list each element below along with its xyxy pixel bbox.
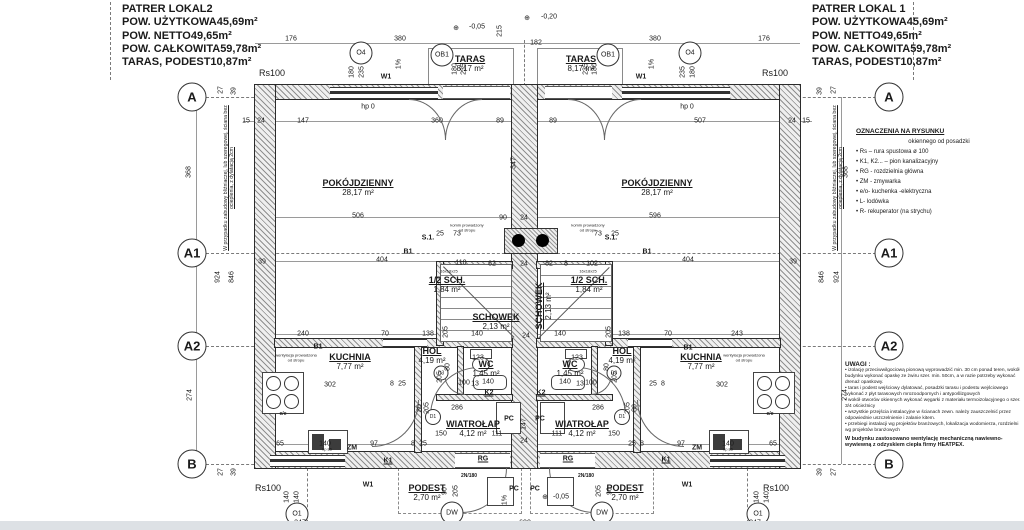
- dim-label: 180: [592, 63, 599, 75]
- room-label: KUCHNIA7,77 m²: [329, 352, 371, 372]
- title-block-row-label: POW. CAŁKOWITA: [122, 43, 220, 56]
- window-top-left: [330, 87, 438, 99]
- dim-label: hp 0: [361, 104, 375, 111]
- dim-label: PC: [535, 416, 545, 423]
- dim-label: 15: [802, 118, 810, 125]
- notes-footer: W budynku zastosowano wentylację mechani…: [845, 436, 1022, 449]
- dim-label: 16x18x25: [579, 269, 596, 274]
- dim-label: 140: [554, 331, 566, 338]
- dim-label: 404: [376, 257, 388, 264]
- dim-label: ZM: [692, 445, 702, 452]
- dim-label: 25: [611, 231, 619, 238]
- dim-label: 205: [453, 485, 460, 497]
- dim-label: -0,05: [553, 494, 569, 501]
- dim-label: K1: [662, 457, 671, 464]
- dim-label: 24: [522, 333, 530, 340]
- grid-marker: A2: [875, 332, 904, 361]
- dim-label: K2: [485, 390, 494, 397]
- dim-label: 111: [492, 431, 503, 438]
- dim-label: 73: [594, 231, 602, 238]
- dim-label: S.1.: [422, 235, 434, 242]
- list-item: • R- rekuperator (na strychu): [856, 207, 1022, 217]
- room-area: 1,45 m²: [556, 369, 583, 379]
- dim-label: 274: [187, 389, 194, 401]
- dim-label: 140: [284, 491, 291, 503]
- symbol-marker: O4: [679, 42, 702, 65]
- dim-label: 286: [451, 405, 463, 412]
- dim-label: 24: [520, 261, 528, 268]
- room-name: SCHOWEK: [534, 283, 544, 330]
- title-block-row-value: 45,69m²: [907, 16, 948, 29]
- dim-label: 39: [817, 87, 824, 95]
- dim-label: 1%: [396, 59, 403, 69]
- legend: OZNACZENIA NA RYSUNKU okiennego od posad…: [856, 127, 1022, 217]
- dim-label: 180: [349, 66, 356, 78]
- dim-label: 110: [455, 260, 466, 267]
- dim-label: 123: [472, 355, 484, 362]
- dim-label: 65: [769, 441, 777, 448]
- dim-label: 368: [843, 166, 850, 178]
- dim-label: e/e: [280, 411, 287, 417]
- dim-label: 205: [606, 326, 613, 338]
- dim-label: 27: [831, 86, 838, 94]
- dim-label: 380: [394, 36, 406, 43]
- dim-label: 147: [297, 118, 309, 125]
- dim-label: 180: [452, 63, 459, 75]
- dim-label: 65: [276, 441, 284, 448]
- title-block-row-value: 49,65m²: [881, 30, 922, 43]
- side-note-right: W przypadku zabudowy bliźniaczej, lub sz…: [832, 99, 844, 257]
- dim-label: 39: [231, 87, 238, 95]
- dim-label: 100: [585, 380, 597, 387]
- title-block-left: PATRER LOKAL2 POW. UŻYTKOWA45,69m²POW. N…: [122, 3, 337, 69]
- dim-label: 70: [381, 331, 389, 338]
- title-block-rows: POW. UŻYTKOWA45,69m²POW. NETTO49,65m²POW…: [812, 16, 1024, 69]
- dim-label: Rs100: [255, 483, 281, 493]
- dim-label: 8: [661, 381, 665, 388]
- title-block-row-label: POW. NETTO: [122, 30, 191, 43]
- dim-label: ⊕: [542, 493, 548, 501]
- list-item: • wszystkie przejścia instalacyjne w ści…: [845, 410, 1022, 422]
- room-area: 7,77 m²: [329, 362, 371, 372]
- dim-label: 360: [431, 118, 443, 125]
- dim-label: 150: [608, 431, 620, 438]
- dim-label: 1%: [649, 59, 656, 69]
- room-area: 28,17 m²: [322, 188, 393, 198]
- room-label: POKÓJDZIENNY28,17 m²: [322, 178, 393, 198]
- room-label: SCHOWEK2,13 m²: [473, 312, 520, 332]
- dim-label: 924: [215, 271, 222, 283]
- dim-label: ⊕: [524, 14, 530, 22]
- title-block-row-label: TARAS, PODEST: [812, 56, 900, 69]
- room-label: SCHOWEK2,13 m²: [534, 283, 554, 330]
- dim-label: Rs100: [259, 68, 285, 78]
- dim-label: 15: [242, 118, 250, 125]
- dim-label: PC: [509, 486, 519, 493]
- dim-label: 235: [680, 66, 687, 78]
- door-swing: [568, 99, 605, 140]
- room-label: HOL4,19 m²: [608, 346, 635, 366]
- list-item: • przebiegi instalacji wg projektów bran…: [845, 422, 1022, 434]
- dim-label: 150: [435, 431, 447, 438]
- dim-label: 215: [497, 25, 504, 37]
- dim-label: W1: [381, 74, 392, 81]
- dim-label: B1: [404, 249, 413, 256]
- dim-label: 176: [758, 36, 770, 43]
- stove-right: [753, 372, 795, 414]
- room-label: WIATROŁAP4,12 m²: [555, 419, 609, 439]
- room-label: TARAS8,17 m²: [455, 54, 485, 74]
- room-area: 2,70 m²: [408, 493, 445, 503]
- dim-label: ZM: [347, 445, 357, 452]
- door-swing: [445, 99, 482, 140]
- list-item: • e/o- kuchenka -elektryczna: [856, 187, 1022, 197]
- dim-label: W1: [363, 482, 374, 489]
- dim-label: 111: [552, 431, 563, 438]
- dim-label: 243: [731, 331, 743, 338]
- room-name: 1/2 SCH.: [429, 275, 466, 285]
- title-block-title: PATRER LOKAL2: [122, 3, 337, 16]
- side-note-left: W przypadku zabudowy bliźniaczej, lub sz…: [223, 99, 235, 257]
- bottom-edge-strip: [0, 521, 1024, 530]
- dim-label: hp 85: [322, 447, 332, 452]
- dim-label: 140: [754, 491, 761, 503]
- burner-icon: [266, 394, 281, 409]
- room-area: 2,13 m²: [544, 283, 554, 330]
- title-block-title: PATRER LOKAL 1: [812, 3, 1024, 16]
- dim-label: 235: [583, 63, 590, 75]
- dim-label: 140: [559, 379, 571, 386]
- dim-label: 302: [716, 382, 728, 389]
- dim-label: 8: [640, 441, 644, 448]
- dim-label: 80: [445, 363, 452, 371]
- room-label: POKÓJDZIENNY28,17 m²: [621, 178, 692, 198]
- grid-marker: A2: [178, 332, 207, 361]
- room-name: WIATROŁAP: [446, 419, 500, 429]
- dim-label: ⊕: [453, 24, 459, 32]
- title-block-row-value: 45,69m²: [217, 16, 258, 29]
- dim-label: 182: [530, 40, 542, 47]
- room-area: 1,84 m²: [429, 285, 466, 295]
- room-name: TARAS: [455, 54, 485, 64]
- room-area: 4,19 m²: [608, 356, 635, 366]
- list-item: • RG - rozdzielnia główna: [856, 167, 1022, 177]
- dim-label: 205: [596, 485, 603, 497]
- title-block-row-label: POW. CAŁKOWITA: [812, 43, 910, 56]
- heat-pump-outdoor-right: [547, 477, 574, 506]
- room-name: SCHOWEK: [473, 312, 520, 322]
- dim-label: 24: [788, 118, 796, 125]
- dim-label: 380: [649, 36, 661, 43]
- dim-label: Rs100: [762, 68, 788, 78]
- dim-label: 8: [411, 441, 415, 448]
- room-name: HOL: [608, 346, 635, 356]
- dim-label: e/e: [767, 411, 774, 417]
- dim-label: 25: [436, 231, 444, 238]
- dim-label: 846: [819, 271, 826, 283]
- dim-label: 138: [422, 331, 434, 338]
- room-label: PODEST2,70 m²: [408, 483, 445, 503]
- dim-label: 8: [564, 261, 568, 268]
- dim-label: 25: [628, 441, 636, 448]
- title-block-row: POW. UŻYTKOWA45,69m²: [812, 16, 1024, 29]
- title-block-right: PATRER LOKAL 1 POW. UŻYTKOWA45,69m²POW. …: [812, 3, 1024, 69]
- dim-label: 70: [664, 331, 672, 338]
- dim-label: 205: [612, 371, 619, 383]
- legend-subtitle: okiennego od posadzki: [856, 137, 1022, 147]
- dim-label: 235: [461, 63, 468, 75]
- dimension-line: [275, 217, 512, 218]
- title-block-row: TARAS, PODEST10,87m²: [122, 56, 337, 69]
- title-block-row: POW. CAŁKOWITA59,78m²: [122, 43, 337, 56]
- title-block-row: TARAS, PODEST10,87m²: [812, 56, 1024, 69]
- dim-label: 27: [218, 86, 225, 94]
- room-name: POKÓJDZIENNY: [621, 178, 692, 188]
- axis-line: [524, 40, 525, 86]
- chimney-block: [504, 228, 558, 254]
- dim-label: B1: [684, 345, 693, 352]
- symbol-marker: OB1: [431, 44, 454, 67]
- terrace-door-left: [443, 86, 510, 99]
- dim-label: 27: [831, 468, 838, 476]
- title-block-row-value: 10,87m²: [900, 56, 941, 69]
- room-area: 1,45 m²: [472, 369, 499, 379]
- title-block-row-value: 49,65m²: [191, 30, 232, 43]
- dim-label: 13: [471, 381, 479, 388]
- dim-label: 180: [690, 66, 697, 78]
- axis-line: [110, 2, 111, 80]
- dim-label: 140: [482, 379, 494, 386]
- burner-icon: [284, 376, 299, 391]
- dim-label: 347: [511, 157, 518, 169]
- title-block-row: POW. NETTO49,65m²: [812, 30, 1024, 43]
- title-block-row-label: POW. UŻYTKOWA: [812, 16, 907, 29]
- dim-label: B1: [314, 344, 323, 351]
- dim-label: 25: [398, 381, 406, 388]
- dim-label: 13: [576, 381, 584, 388]
- dim-label: 140: [471, 331, 483, 338]
- dim-label: 506: [352, 213, 364, 220]
- room-area: 4,12 m²: [555, 429, 609, 439]
- dim-label: 25: [419, 441, 427, 448]
- floor-plan-canvas: PATRER LOKAL2 POW. UŻYTKOWA45,69m²POW. N…: [0, 0, 1024, 530]
- dimension-line: [196, 97, 197, 464]
- dim-label: 27: [218, 468, 225, 476]
- dim-label: 302: [324, 382, 336, 389]
- dim-label: Rs100: [763, 483, 789, 493]
- title-block-row: POW. CAŁKOWITA59,78m²: [812, 43, 1024, 56]
- dim-label: W1: [636, 74, 647, 81]
- window-top-right: [622, 87, 730, 99]
- symbol-marker: OB1: [597, 44, 620, 67]
- dim-label: 205: [625, 402, 632, 414]
- dim-label: RG: [563, 456, 574, 463]
- burner-icon: [266, 376, 281, 391]
- dim-label: B1: [643, 249, 652, 256]
- dim-label: 147: [521, 418, 528, 430]
- room-area: 8,17 m²: [455, 64, 485, 74]
- dim-label: 82: [488, 261, 496, 268]
- list-item: • L- lodówka: [856, 197, 1022, 207]
- dim-label: -0,05: [469, 24, 485, 31]
- room-label: WC1,45 m²: [556, 359, 583, 379]
- room-name: 1/2 SCH.: [571, 275, 608, 285]
- legend-items: • Rs – rura spustowa ø 100• K1, K2... – …: [856, 147, 1022, 217]
- room-name: PODEST: [408, 483, 445, 493]
- dim-label: 123: [571, 355, 583, 362]
- dim-label: 235: [359, 66, 366, 78]
- dim-label: PC: [504, 416, 514, 423]
- dim-label: K1: [384, 458, 393, 465]
- dim-label: 39: [258, 259, 266, 266]
- room-label: WC1,45 m²: [472, 359, 499, 379]
- dim-label: 89: [496, 118, 504, 125]
- burner-icon: [775, 394, 790, 409]
- dim-label: 80: [632, 404, 639, 412]
- burner-icon: [757, 376, 772, 391]
- dim-label: 846: [229, 271, 236, 283]
- dim-label: 24: [520, 438, 528, 445]
- grid-marker: A: [875, 83, 904, 112]
- dim-label: 102: [586, 261, 598, 268]
- dim-label: 39: [231, 468, 238, 476]
- dim-label: 24: [257, 118, 265, 125]
- title-block-row-label: POW. NETTO: [812, 30, 881, 43]
- dim-label: od stropu: [459, 228, 476, 233]
- chimney-flue: [512, 234, 525, 247]
- title-block-row-label: TARAS, PODEST: [122, 56, 210, 69]
- window-bottom-right: [710, 455, 785, 467]
- title-block-row-label: POW. UŻYTKOWA: [122, 16, 217, 29]
- dim-label: K2: [537, 390, 546, 397]
- title-block-row: POW. UŻYTKOWA45,69m²: [122, 16, 337, 29]
- dim-label: PC: [530, 486, 540, 493]
- dim-label: 176: [285, 36, 297, 43]
- list-item: • taras i podest wejściowy dylatować, po…: [845, 386, 1022, 398]
- dim-label: 39: [789, 259, 797, 266]
- grid-marker: A1: [178, 239, 207, 268]
- dim-label: hp 0: [680, 104, 694, 111]
- dim-label: 73: [453, 231, 461, 238]
- dim-label: 80: [604, 363, 611, 371]
- title-block-row-value: 59,78m²: [910, 43, 951, 56]
- burner-icon: [757, 394, 772, 409]
- room-label: 1/2 SCH.1,84 m²: [571, 275, 608, 295]
- dim-label: 90: [442, 487, 449, 495]
- room-area: 28,17 m²: [621, 188, 692, 198]
- burner-icon: [775, 376, 790, 391]
- dim-label: 205: [424, 402, 431, 414]
- room-area: 7,77 m²: [680, 362, 722, 372]
- dim-label: od stropu: [288, 358, 305, 363]
- dim-label: 274: [842, 389, 849, 401]
- window-bottom-left: [270, 455, 345, 467]
- dim-label: 90: [607, 487, 614, 495]
- dim-label: -0,20: [541, 14, 557, 21]
- dim-label: 89: [549, 118, 557, 125]
- room-name: POKÓJDZIENNY: [322, 178, 393, 188]
- room-area: 4,19 m²: [418, 356, 445, 366]
- grid-marker: A1: [875, 239, 904, 268]
- room-label: HOL4,19 m²: [418, 346, 445, 366]
- title-block-row-value: 10,87m²: [210, 56, 251, 69]
- dim-label: 90: [499, 215, 507, 222]
- dim-label: 138: [618, 331, 630, 338]
- dim-label: 596: [649, 213, 661, 220]
- grid-marker: A: [178, 83, 207, 112]
- title-block-row-value: 59,78m²: [220, 43, 261, 56]
- room-label: 1/2 SCH.1,84 m²: [429, 275, 466, 295]
- dim-label: 368: [186, 166, 193, 178]
- dim-label: 140: [294, 491, 301, 503]
- dim-label: RG: [478, 456, 489, 463]
- grid-marker: B: [178, 450, 207, 479]
- symbol-marker: O4: [350, 42, 373, 65]
- list-item: • K1, K2... – pion kanalizacyjny: [856, 157, 1022, 167]
- dim-label: 80: [417, 404, 424, 412]
- chimney-flue: [536, 234, 549, 247]
- notes-items: • izolację przeciwwilgociową pionową wyp…: [845, 368, 1022, 434]
- dim-label: 507: [694, 118, 706, 125]
- room-area: 1,84 m²: [571, 285, 608, 295]
- dim-label: 39: [817, 468, 824, 476]
- terrace-door-right: [545, 86, 612, 99]
- dim-label: 924: [834, 271, 841, 283]
- dim-label: 97: [677, 441, 685, 448]
- dim-label: hp 85: [723, 447, 733, 452]
- grid-marker: B: [875, 450, 904, 479]
- list-item: • wokół otworów okiennych wykonać węgark…: [845, 398, 1022, 410]
- dim-label: 16x18x25: [440, 269, 457, 274]
- room-name: HOL: [418, 346, 445, 356]
- dim-label: 2N/180: [461, 473, 477, 479]
- room-name: KUCHNIA: [680, 352, 722, 362]
- dim-label: 24: [520, 215, 528, 222]
- dim-label: 8: [390, 381, 394, 388]
- dim-label: 25: [649, 381, 657, 388]
- legend-title: OZNACZENIA NA RYSUNKU: [856, 127, 1022, 137]
- door-swing: [604, 99, 641, 140]
- list-item: • izolację przeciwwilgociową pionową wyp…: [845, 368, 1022, 386]
- room-label: KUCHNIA7,77 m²: [680, 352, 722, 372]
- dim-label: 205: [437, 371, 444, 383]
- dim-label: 1%: [502, 495, 509, 505]
- list-item: • ZM - zmywarka: [856, 177, 1022, 187]
- room-name: WIATROŁAP: [555, 419, 609, 429]
- dim-label: 404: [682, 257, 694, 264]
- stove-left: [262, 372, 304, 414]
- dim-label: 97: [370, 441, 378, 448]
- dim-label: 205: [443, 326, 450, 338]
- notes-block: UWAGI : • izolację przeciwwilgociową pio…: [845, 362, 1022, 449]
- dim-label: 100: [458, 380, 470, 387]
- dim-label: W1: [682, 482, 693, 489]
- list-item: • Rs – rura spustowa ø 100: [856, 147, 1022, 157]
- burner-icon: [284, 394, 299, 409]
- dim-label: 2N/180: [578, 473, 594, 479]
- dim-label: od stropu: [736, 358, 753, 363]
- dim-label: 82: [545, 261, 553, 268]
- dim-label: 240: [297, 331, 309, 338]
- title-block-rows: POW. UŻYTKOWA45,69m²POW. NETTO49,65m²POW…: [122, 16, 337, 69]
- dim-label: 286: [592, 405, 604, 412]
- title-block-row: POW. NETTO49,65m²: [122, 30, 337, 43]
- room-name: KUCHNIA: [329, 352, 371, 362]
